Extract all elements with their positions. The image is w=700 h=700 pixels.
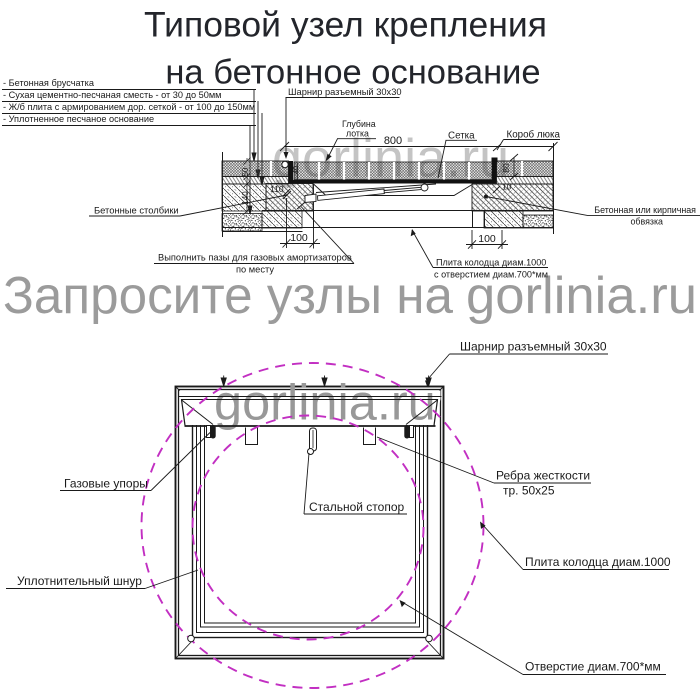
svg-text:Глубина: Глубина <box>342 119 376 129</box>
svg-text:800: 800 <box>384 135 402 147</box>
svg-text:Запросите узлы на: Запросите узлы на <box>3 266 453 324</box>
svg-text:Стальной стопор: Стальной стопор <box>309 500 405 514</box>
svg-text:Плита колодца диам.1000: Плита колодца диам.1000 <box>436 258 546 268</box>
svg-text:10: 10 <box>502 182 512 192</box>
svg-text:100: 100 <box>290 232 308 244</box>
svg-text:110: 110 <box>270 184 284 194</box>
svg-text:80: 80 <box>501 163 511 173</box>
svg-text:тр. 50х25: тр. 50х25 <box>503 484 555 498</box>
svg-text:- Уплотненное песчаное основан: - Уплотненное песчаное основание <box>3 114 154 124</box>
svg-text:Выполнить пазы для газовых амо: Выполнить пазы для газовых амортизаторов <box>158 253 352 263</box>
svg-text:на бетонное основание: на бетонное основание <box>165 54 540 92</box>
svg-text:Сетка: Сетка <box>448 130 475 141</box>
svg-text:Газовые упоры: Газовые упоры <box>64 477 148 491</box>
svg-text:50: 50 <box>241 167 250 176</box>
svg-text:- Сухая цементно-песчаная смес: - Сухая цементно-песчаная сместь - от 30… <box>3 90 221 100</box>
svg-text:- Бетонная брусчатка: - Бетонная брусчатка <box>3 78 95 88</box>
svg-text:с отверстием диам.700*мм: с отверстием диам.700*мм <box>434 270 548 280</box>
svg-text:Бетонные столбики: Бетонные столбики <box>94 205 179 216</box>
svg-text:Плита колодца диам.1000: Плита колодца диам.1000 <box>525 555 671 569</box>
svg-text:Шарнир разъемный 30х30: Шарнир разъемный 30х30 <box>460 340 607 354</box>
svg-text:обвязка: обвязка <box>630 217 663 227</box>
svg-text:100: 100 <box>478 233 496 245</box>
svg-text:Бетонная или кирпичная: Бетонная или кирпичная <box>594 205 696 215</box>
svg-text:Шарнир разъемный 30х30: Шарнир разъемный 30х30 <box>288 87 402 97</box>
svg-text:по месту: по месту <box>236 265 274 275</box>
svg-text:Ребра жесткости: Ребра жесткости <box>496 469 590 483</box>
svg-text:Уплотнительный шнур: Уплотнительный шнур <box>17 574 142 588</box>
svg-text:Типовой узел крепления: Типовой узел крепления <box>144 5 547 45</box>
svg-text:Короб люка: Короб люка <box>507 130 561 141</box>
svg-text:лотка: лотка <box>346 129 369 139</box>
svg-text:Отверстие диам.700*мм: Отверстие диам.700*мм <box>525 660 661 674</box>
svg-text:- Ж/б плита с армированием дор: - Ж/б плита с армированием дор. сеткой -… <box>3 102 255 112</box>
svg-text:40: 40 <box>291 166 300 174</box>
